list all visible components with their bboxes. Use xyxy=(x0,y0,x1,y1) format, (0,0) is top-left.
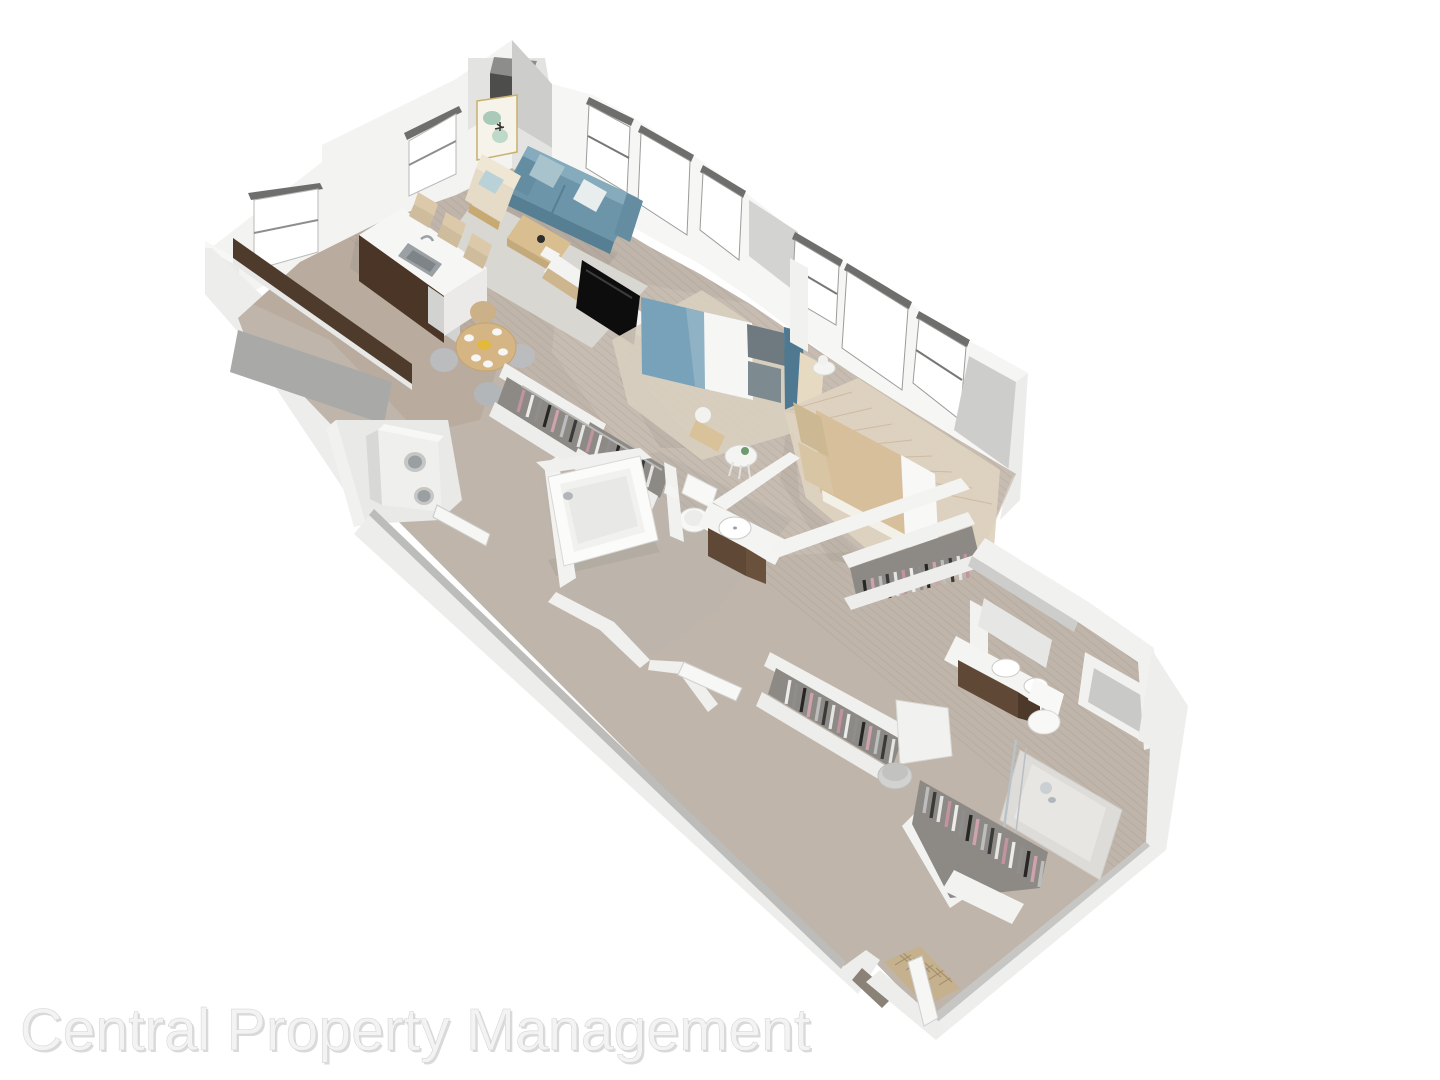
svg-text:Central Property Management: Central Property Management xyxy=(20,997,810,1063)
